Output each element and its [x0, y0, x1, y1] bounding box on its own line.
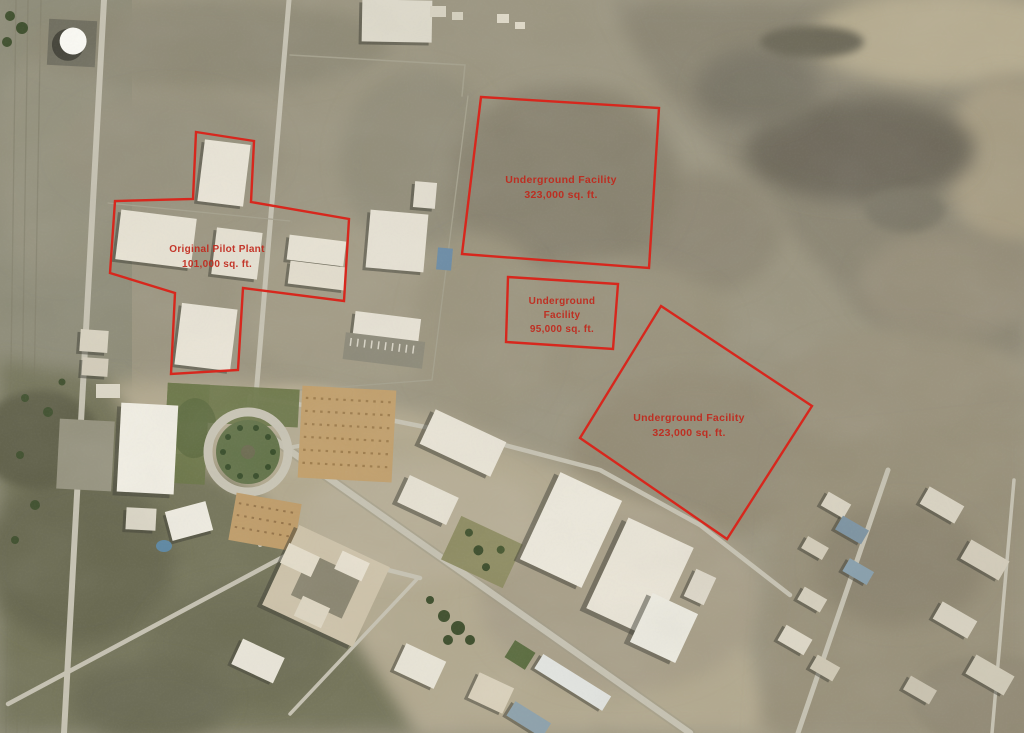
annotation-label: 323,000 sq. ft. — [652, 427, 725, 439]
annotation-label: Underground Facility — [633, 412, 745, 424]
annotation-label: 101,000 sq. ft. — [182, 259, 252, 270]
annotation-label: Original Pilot Plant — [169, 244, 265, 255]
annotation-label: Underground Facility — [505, 174, 617, 186]
annotation-label: Underground — [529, 296, 596, 307]
satellite-canvas: Original Pilot Plant 101,000 sq. ft. Und… — [0, 0, 1024, 733]
satellite-image: Original Pilot Plant 101,000 sq. ft. Und… — [0, 0, 1024, 733]
annotation-label: 323,000 sq. ft. — [524, 189, 597, 201]
annotation-label: 95,000 sq. ft. — [530, 324, 594, 335]
photo-grain-overlay — [0, 0, 1024, 733]
annotation-label: Facility — [544, 310, 581, 321]
